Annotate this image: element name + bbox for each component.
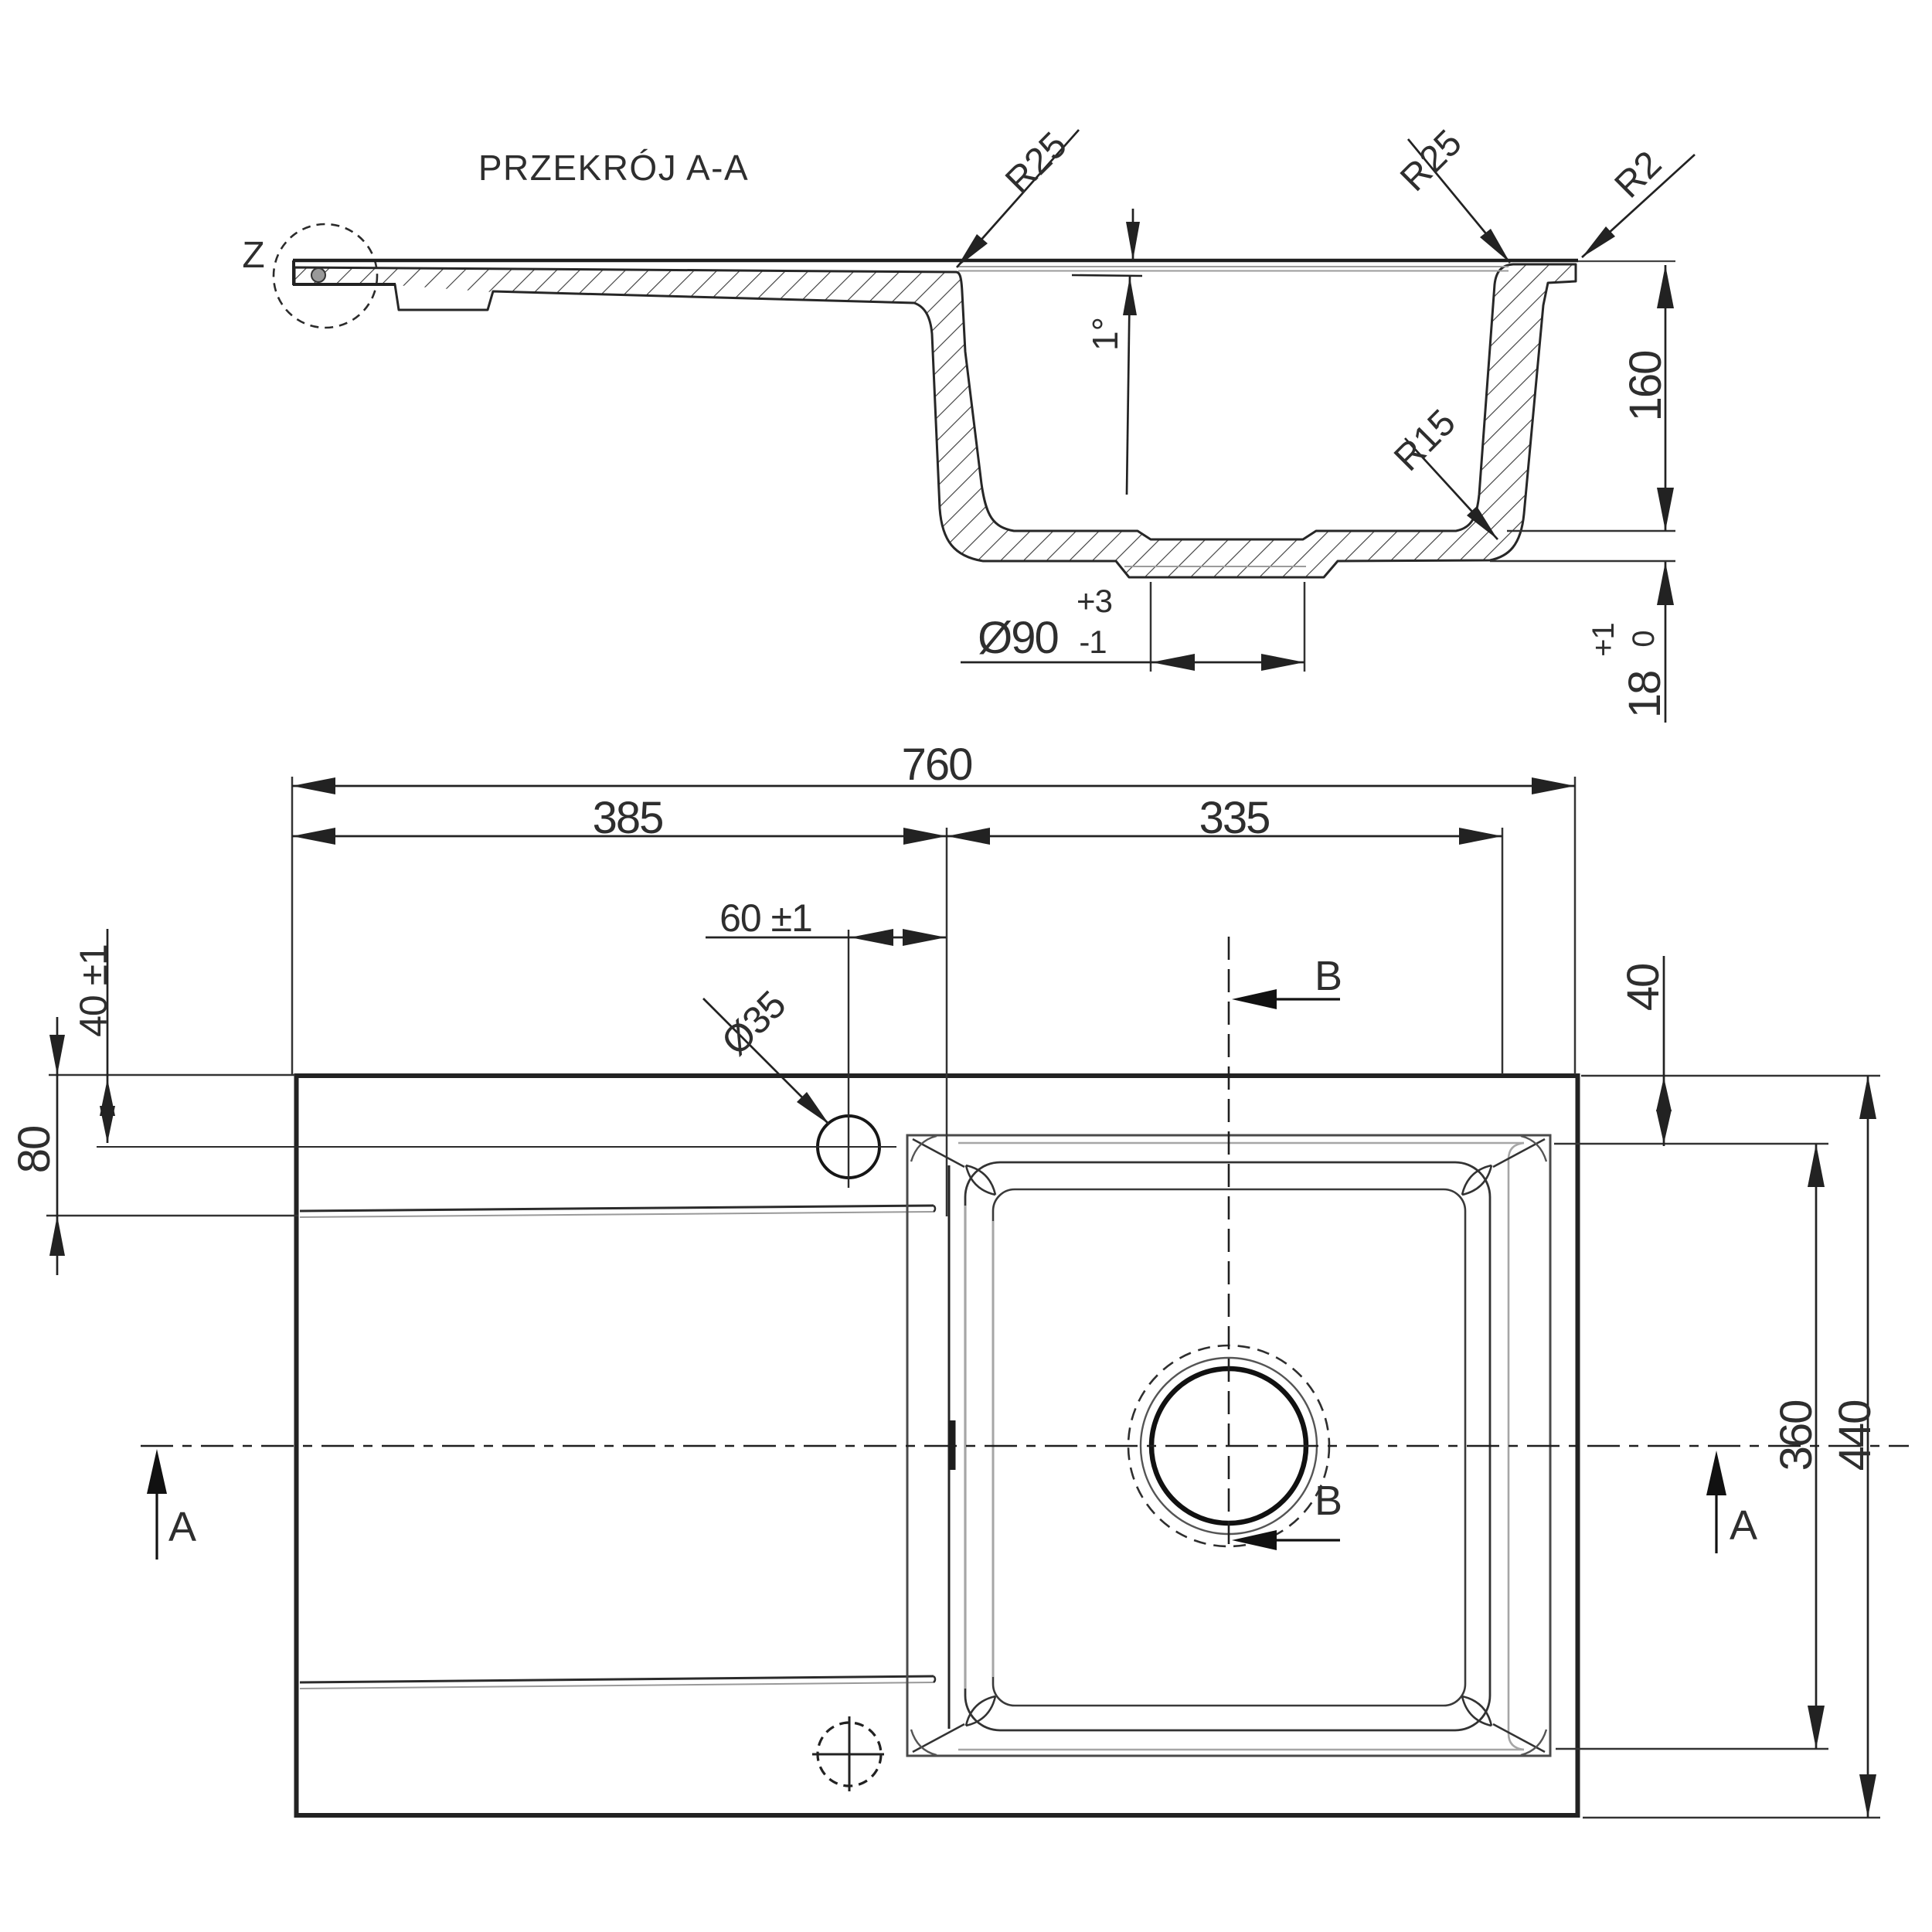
svg-text:60 ±1: 60 ±1 [719, 896, 812, 940]
svg-text:Ø90: Ø90 [978, 613, 1058, 663]
svg-text:360: 360 [1771, 1401, 1821, 1471]
svg-text:440: 440 [1830, 1401, 1880, 1471]
svg-text:R2: R2 [1607, 144, 1670, 206]
svg-text:760: 760 [902, 740, 972, 790]
svg-text:160: 160 [1621, 352, 1671, 422]
svg-text:B: B [1315, 953, 1342, 999]
svg-text:335: 335 [1199, 793, 1270, 843]
svg-text:A: A [1730, 1502, 1757, 1549]
svg-text:PRZEKRÓJ A-A: PRZEKRÓJ A-A [478, 148, 749, 188]
svg-text:80: 80 [9, 1127, 60, 1174]
svg-text:-1: -1 [1079, 624, 1106, 660]
svg-text:40 ±1: 40 ±1 [72, 944, 115, 1037]
svg-text:385: 385 [593, 793, 663, 843]
svg-text:1°: 1° [1085, 317, 1125, 351]
svg-text:R25: R25 [1393, 122, 1470, 199]
svg-text:40: 40 [1618, 964, 1668, 1012]
svg-text:18: 18 [1620, 672, 1670, 719]
svg-text:+3: +3 [1077, 583, 1112, 619]
svg-text:A: A [168, 1504, 196, 1550]
svg-text:R25: R25 [998, 124, 1075, 202]
svg-text:Ø35: Ø35 [713, 983, 794, 1063]
svg-text:R15: R15 [1386, 402, 1464, 479]
svg-text:B: B [1315, 1478, 1342, 1524]
svg-text:Z: Z [242, 235, 264, 276]
svg-text:0: 0 [1627, 631, 1661, 647]
svg-text:+1: +1 [1587, 623, 1621, 657]
